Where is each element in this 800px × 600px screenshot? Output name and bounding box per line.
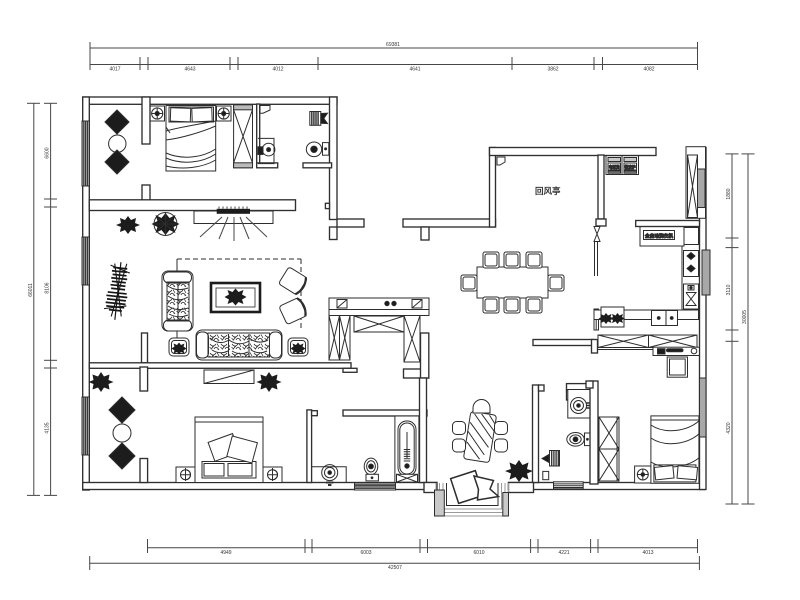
svg-text:4082: 4082 <box>643 67 654 73</box>
svg-text:69381: 69381 <box>386 42 400 48</box>
svg-text:1880: 1880 <box>726 188 732 199</box>
svg-text:4320: 4320 <box>726 422 732 433</box>
svg-text:全自动洗衣机: 全自动洗衣机 <box>645 232 673 239</box>
svg-text:4012: 4012 <box>272 67 283 73</box>
svg-text:8106: 8106 <box>45 282 51 293</box>
svg-text:4013: 4013 <box>642 550 653 556</box>
svg-text:4017: 4017 <box>109 67 120 73</box>
svg-text:6600: 6600 <box>45 147 51 158</box>
svg-text:4949: 4949 <box>220 550 231 556</box>
svg-text:电饭煲: 电饭煲 <box>609 164 621 171</box>
svg-text:3110: 3110 <box>726 284 732 295</box>
svg-text:4221: 4221 <box>558 550 569 556</box>
svg-text:回风亭: 回风亭 <box>535 186 561 196</box>
svg-text:6010: 6010 <box>473 550 484 556</box>
svg-text:42507: 42507 <box>388 565 402 571</box>
svg-text:30005: 30005 <box>742 310 748 324</box>
svg-text:微波炉: 微波炉 <box>625 164 636 171</box>
svg-text:4641: 4641 <box>409 67 420 73</box>
svg-text:4643: 4643 <box>184 67 195 73</box>
svg-text:4135: 4135 <box>45 422 51 433</box>
svg-text:6003: 6003 <box>360 550 371 556</box>
svg-text:3862: 3862 <box>547 67 558 73</box>
svg-text:66011: 66011 <box>28 283 34 297</box>
